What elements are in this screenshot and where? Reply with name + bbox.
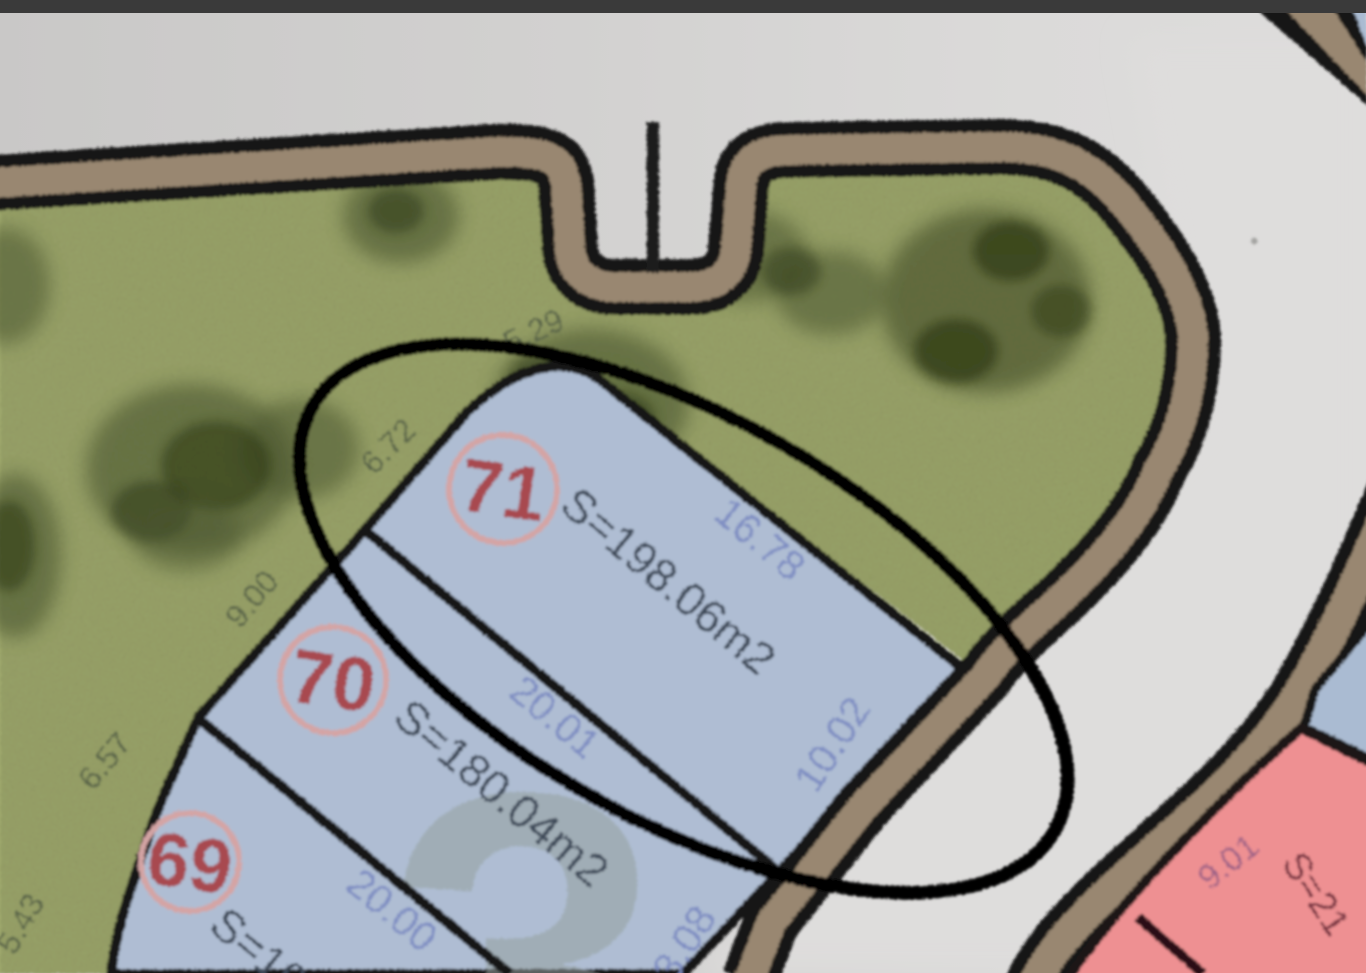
svg-text:71: 71	[454, 442, 550, 538]
svg-text:69: 69	[141, 815, 237, 911]
svg-text:70: 70	[284, 633, 380, 729]
